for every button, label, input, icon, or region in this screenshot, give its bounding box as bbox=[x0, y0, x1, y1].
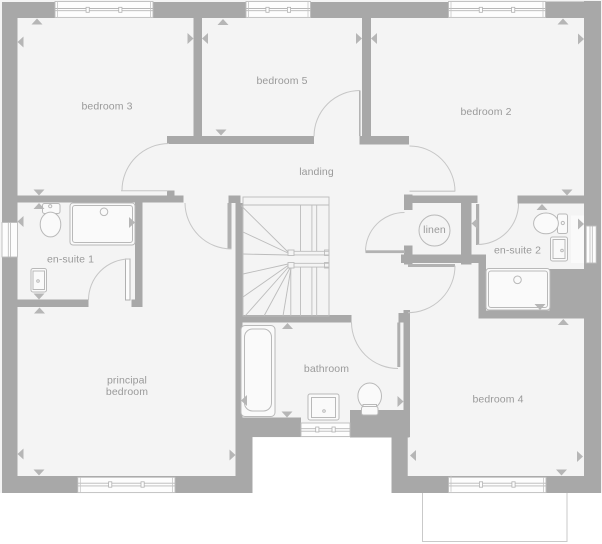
svg-text:bedroom: bedroom bbox=[106, 386, 148, 398]
svg-text:principal: principal bbox=[107, 375, 147, 387]
svg-text:bedroom 2: bedroom 2 bbox=[460, 106, 511, 118]
svg-text:bedroom 4: bedroom 4 bbox=[472, 394, 523, 406]
svg-text:bedroom 3: bedroom 3 bbox=[81, 101, 132, 113]
svg-text:en-suite 2: en-suite 2 bbox=[494, 245, 541, 257]
svg-text:linen: linen bbox=[423, 224, 446, 236]
svg-text:landing: landing bbox=[299, 166, 334, 178]
svg-text:bathroom: bathroom bbox=[304, 363, 349, 375]
svg-text:en-suite 1: en-suite 1 bbox=[47, 254, 94, 266]
svg-text:bedroom 5: bedroom 5 bbox=[256, 75, 307, 87]
